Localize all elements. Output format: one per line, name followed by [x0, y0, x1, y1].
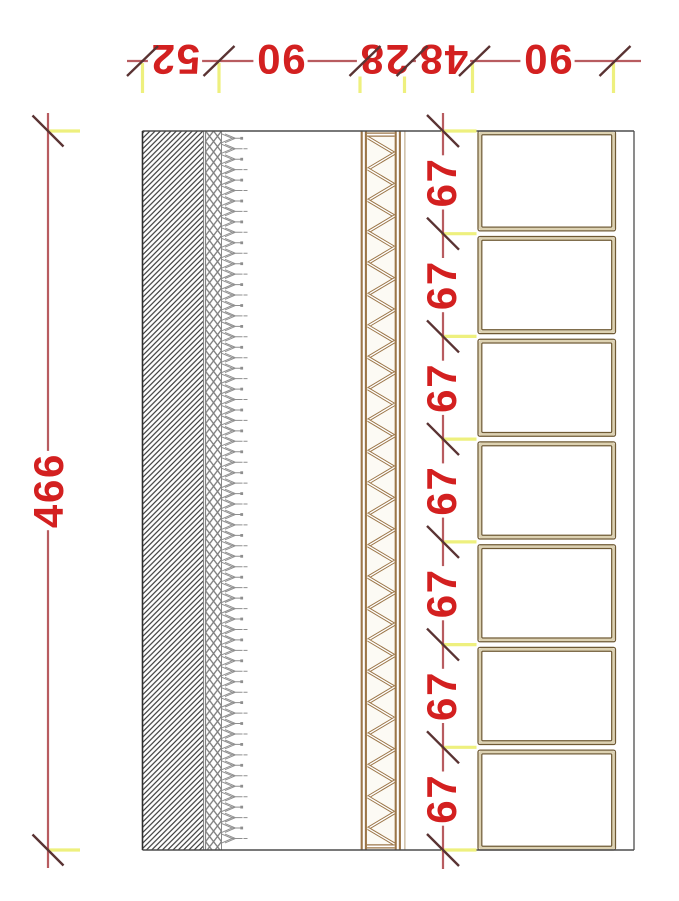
svg-text:67: 67 — [418, 465, 465, 515]
svg-text:67: 67 — [418, 671, 465, 721]
svg-text:67: 67 — [418, 363, 465, 413]
svg-text:466: 466 — [25, 453, 72, 528]
svg-text:67: 67 — [418, 260, 465, 310]
svg-text:90: 90 — [522, 36, 572, 83]
svg-text:52: 52 — [150, 36, 200, 83]
svg-text:67: 67 — [418, 568, 465, 618]
svg-text:67: 67 — [418, 774, 465, 824]
svg-text:90: 90 — [255, 36, 305, 83]
svg-text:67: 67 — [418, 157, 465, 207]
